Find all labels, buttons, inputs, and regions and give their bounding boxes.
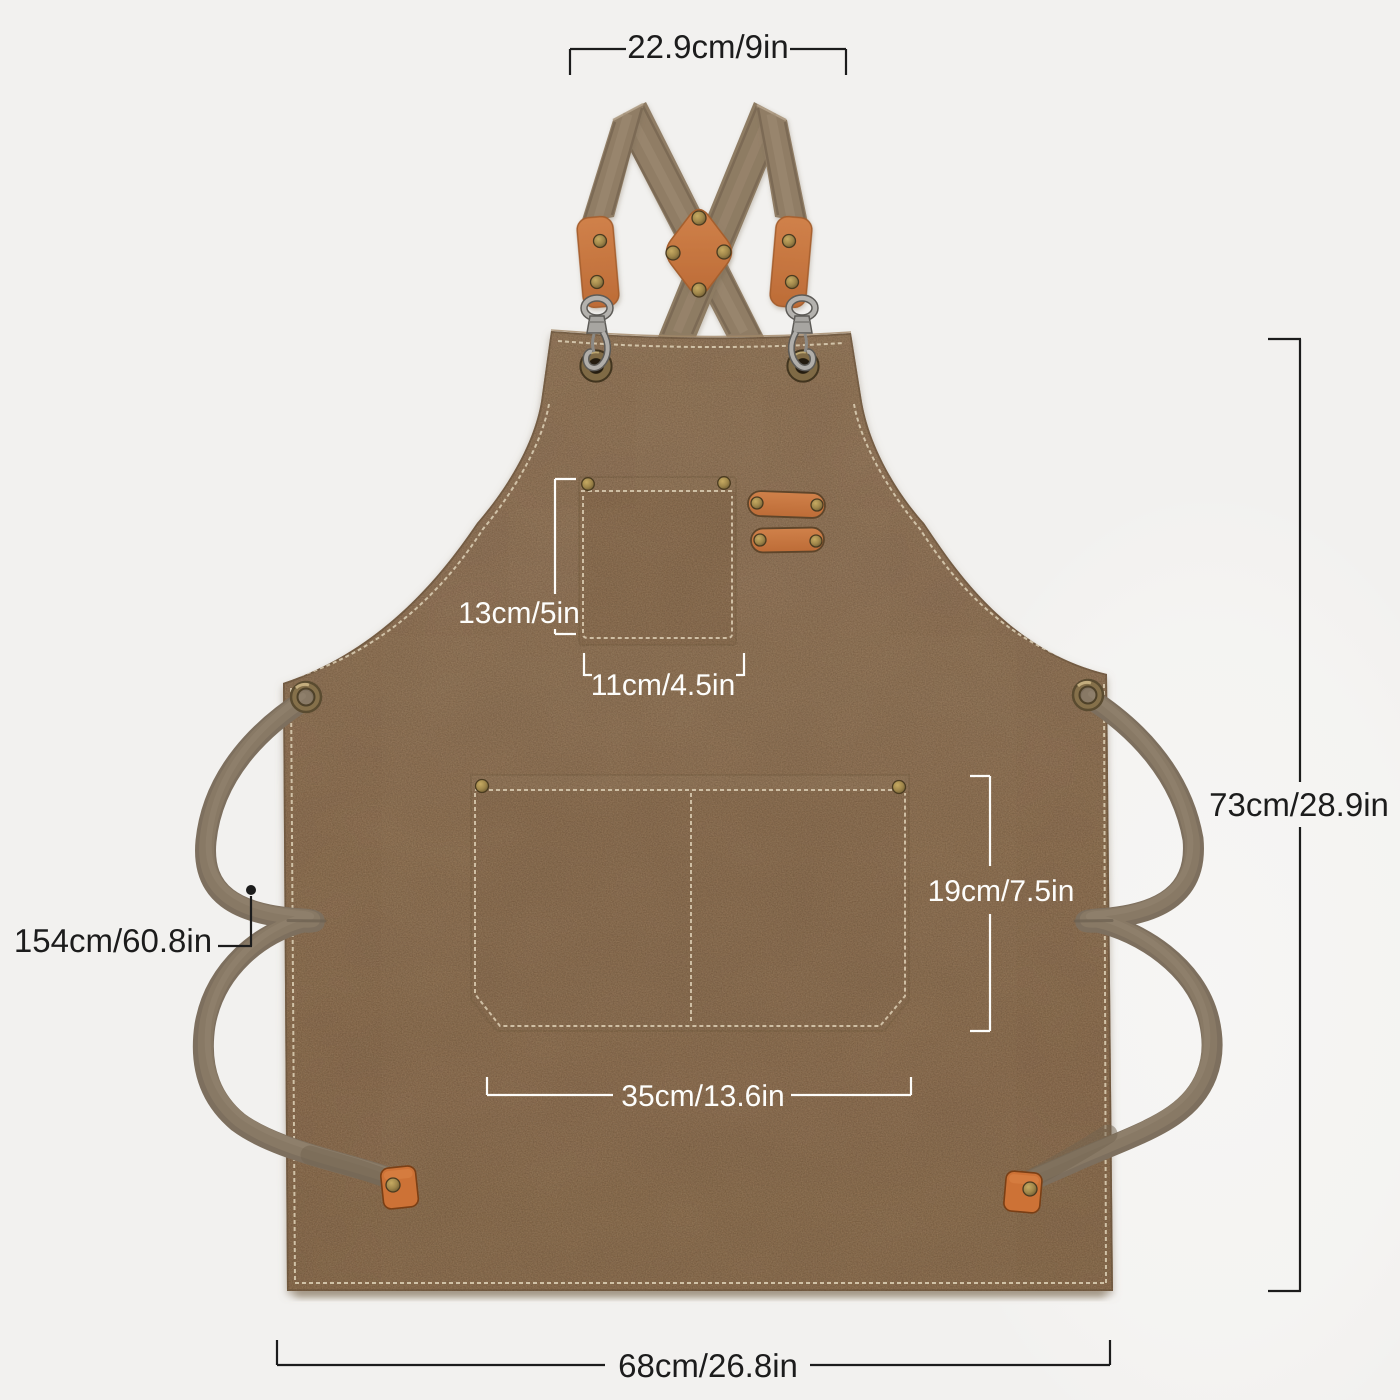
svg-text:11cm/4.5in: 11cm/4.5in xyxy=(591,669,736,702)
svg-text:73cm/28.9in: 73cm/28.9in xyxy=(1209,786,1389,823)
svg-text:68cm/26.8in: 68cm/26.8in xyxy=(618,1347,798,1384)
svg-text:154cm/60.8in: 154cm/60.8in xyxy=(14,922,212,959)
svg-text:35cm/13.6in: 35cm/13.6in xyxy=(621,1080,784,1113)
svg-text:19cm/7.5in: 19cm/7.5in xyxy=(928,875,1075,908)
svg-text:13cm/5in: 13cm/5in xyxy=(458,597,580,630)
svg-text:22.9cm/9in: 22.9cm/9in xyxy=(627,28,788,65)
